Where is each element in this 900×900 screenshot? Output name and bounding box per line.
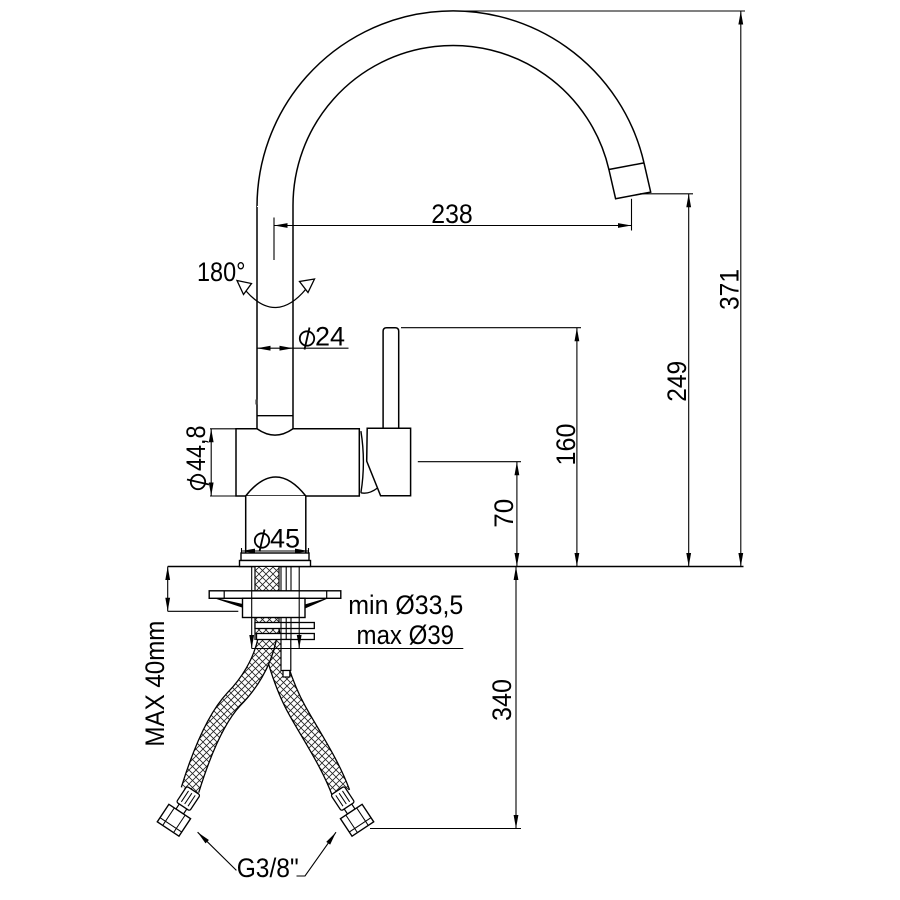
svg-text:371: 371 — [715, 269, 745, 310]
svg-text:249: 249 — [662, 361, 692, 402]
svg-text:MAX 40mm: MAX 40mm — [140, 621, 170, 747]
svg-text:70: 70 — [489, 499, 519, 528]
svg-text:44,8: 44,8 — [181, 426, 211, 472]
svg-text:max Ø39: max Ø39 — [357, 620, 455, 650]
svg-text:160: 160 — [551, 424, 581, 466]
svg-text:min Ø33,5: min Ø33,5 — [348, 590, 463, 620]
svg-text:340: 340 — [487, 679, 517, 721]
svg-text:238: 238 — [431, 199, 473, 229]
svg-text:45: 45 — [270, 524, 300, 554]
svg-text:G3/8": G3/8" — [237, 853, 299, 883]
svg-text:24: 24 — [315, 322, 345, 352]
